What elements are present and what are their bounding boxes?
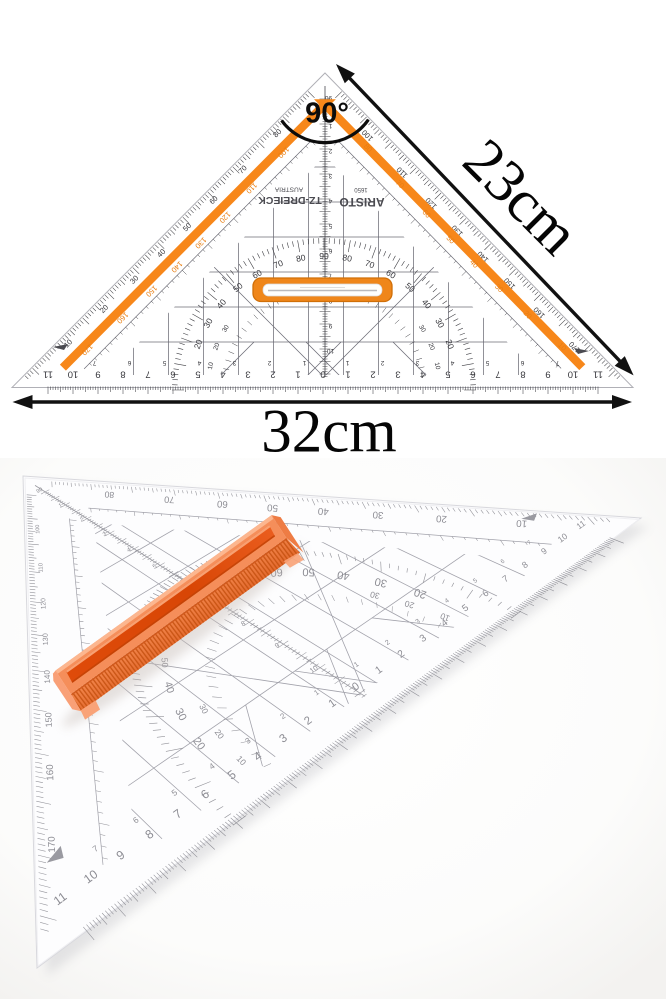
svg-text:1: 1 — [302, 359, 306, 366]
svg-text:4: 4 — [450, 359, 454, 366]
svg-text:7: 7 — [145, 369, 150, 380]
svg-text:6: 6 — [127, 359, 131, 366]
svg-text:7: 7 — [555, 359, 559, 366]
svg-text:32cm: 32cm — [261, 399, 397, 466]
svg-text:50: 50 — [266, 501, 278, 513]
svg-text:80: 80 — [295, 252, 306, 264]
svg-text:170: 170 — [46, 835, 58, 852]
svg-text:5: 5 — [445, 369, 450, 380]
svg-text:3: 3 — [328, 172, 332, 179]
svg-text:90: 90 — [319, 251, 329, 261]
svg-text:1: 1 — [295, 369, 300, 380]
svg-text:TZ-DREIECK: TZ-DREIECK — [258, 194, 322, 206]
svg-text:3: 3 — [232, 359, 236, 366]
svg-text:3: 3 — [245, 369, 250, 380]
svg-text:9: 9 — [328, 322, 332, 329]
svg-text:20: 20 — [435, 512, 447, 524]
svg-text:40: 40 — [337, 568, 351, 582]
svg-text:AUSTRIA: AUSTRIA — [274, 186, 303, 193]
svg-text:2: 2 — [267, 359, 271, 366]
svg-text:2: 2 — [380, 359, 384, 366]
svg-text:2: 2 — [370, 369, 375, 380]
svg-text:2: 2 — [270, 369, 275, 380]
svg-text:2: 2 — [328, 147, 332, 154]
svg-text:8: 8 — [520, 369, 525, 380]
svg-text:7: 7 — [92, 359, 96, 366]
svg-text:80: 80 — [342, 252, 353, 264]
svg-text:5: 5 — [162, 359, 166, 366]
svg-text:40: 40 — [317, 505, 329, 517]
svg-text:7: 7 — [495, 369, 500, 380]
svg-text:3: 3 — [415, 359, 419, 366]
svg-text:1650: 1650 — [354, 186, 368, 192]
svg-text:100: 100 — [35, 525, 41, 534]
svg-text:6: 6 — [520, 359, 524, 366]
svg-text:90°: 90° — [305, 98, 349, 130]
svg-text:110: 110 — [38, 562, 44, 572]
svg-text:11: 11 — [43, 369, 53, 380]
svg-text:5: 5 — [328, 222, 332, 229]
svg-text:50: 50 — [302, 565, 315, 578]
svg-text:9: 9 — [545, 369, 550, 380]
svg-text:11: 11 — [593, 369, 603, 380]
svg-text:4: 4 — [328, 197, 332, 204]
svg-text:130: 130 — [41, 633, 50, 646]
svg-text:3: 3 — [395, 369, 400, 380]
svg-text:120: 120 — [40, 598, 47, 610]
svg-text:5: 5 — [195, 369, 200, 380]
svg-text:1: 1 — [345, 369, 350, 380]
svg-text:160: 160 — [45, 764, 57, 781]
svg-text:30: 30 — [372, 508, 384, 520]
svg-text:4: 4 — [197, 359, 201, 366]
svg-text:ARISTO: ARISTO — [339, 195, 384, 209]
svg-text:140: 140 — [43, 669, 53, 683]
svg-text:10: 10 — [68, 369, 79, 380]
svg-text:60: 60 — [216, 498, 228, 510]
svg-text:9: 9 — [95, 369, 100, 380]
svg-text:10: 10 — [568, 369, 579, 380]
svg-text:5: 5 — [485, 359, 489, 366]
svg-text:8: 8 — [120, 369, 125, 380]
svg-text:80: 80 — [104, 489, 114, 500]
svg-text:1: 1 — [345, 359, 349, 366]
svg-text:10: 10 — [327, 347, 335, 354]
svg-text:150: 150 — [43, 712, 54, 727]
svg-text:6: 6 — [328, 247, 332, 254]
svg-text:70: 70 — [164, 494, 175, 505]
svg-text:4: 4 — [220, 369, 225, 380]
